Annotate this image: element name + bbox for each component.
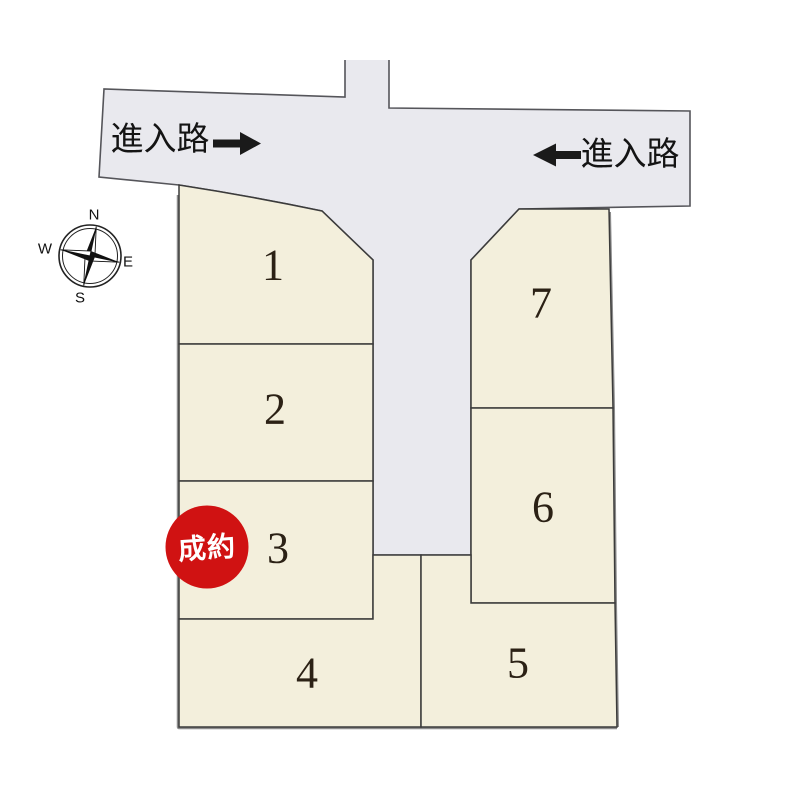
lot-number-2: 2 [264,385,286,434]
sold-badge-label: 成約 [177,530,237,566]
lot-number-5: 5 [507,639,529,688]
compass-label-north: N [89,207,100,224]
entry-road-label-right: 進入路 [581,136,680,173]
lot-map: 1 2 3 4 5 6 7 進入路 進入路 N W E S 成約 [0,0,790,790]
sold-badge: 成約 [166,506,249,589]
compass-rose: N W E S [38,207,133,307]
lot-number-7: 7 [530,279,552,328]
compass-label-south: S [75,290,85,307]
lot-number-4: 4 [296,649,318,698]
compass-label-east: E [123,254,133,271]
lot-number-3: 3 [267,524,289,573]
compass-label-west: W [38,241,53,258]
site-plan-page: 1 2 3 4 5 6 7 進入路 進入路 N W E S 成約 [0,0,790,790]
lot-number-6: 6 [532,483,554,532]
entry-road-label-left: 進入路 [111,121,210,158]
lot-number-1: 1 [262,241,284,290]
